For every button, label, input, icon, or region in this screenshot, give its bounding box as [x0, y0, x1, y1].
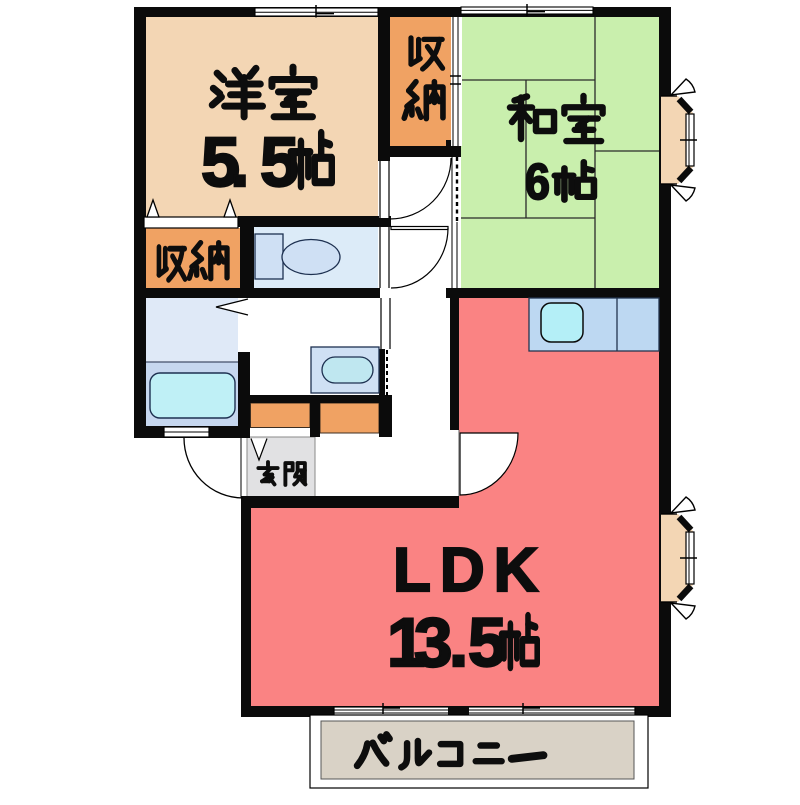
svg-text:5: 5 — [468, 604, 506, 681]
svg-text:6: 6 — [525, 153, 550, 210]
svg-text:3: 3 — [414, 604, 452, 681]
svg-text:.: . — [449, 604, 468, 681]
svg-text:LDK: LDK — [393, 536, 547, 605]
svg-text:.: . — [230, 123, 249, 201]
